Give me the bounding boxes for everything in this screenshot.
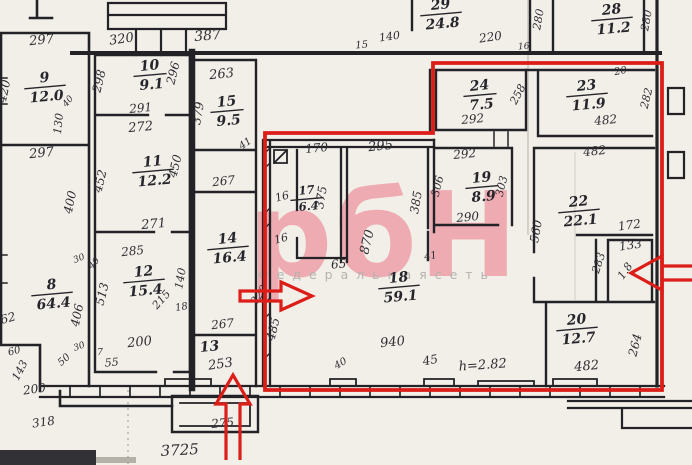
dim-label: 482 xyxy=(593,112,618,128)
room-area: 9.5 xyxy=(216,112,242,130)
dim-label: 297 xyxy=(28,145,56,163)
room-number: 8 xyxy=(46,277,58,294)
room-area: 7.5 xyxy=(469,96,495,114)
dim-label: 290 xyxy=(455,209,480,225)
dim-label: 275 xyxy=(210,415,235,431)
dim-label: 3725 xyxy=(160,440,199,460)
dim-label: 267 xyxy=(209,316,235,332)
dim-label: 200 xyxy=(126,334,153,352)
room-area: 12.2 xyxy=(137,172,173,191)
room-area: 16.4 xyxy=(212,249,247,268)
room-area: 22.1 xyxy=(562,212,598,231)
room-area: 24.8 xyxy=(424,15,461,34)
room-number: 23 xyxy=(575,77,597,95)
room-number: 24 xyxy=(468,77,490,95)
dim-label: 15 xyxy=(355,39,369,51)
dim-label: 45 xyxy=(421,352,439,369)
room-number: 15 xyxy=(216,93,237,111)
room-area: 12.7 xyxy=(561,330,597,349)
scan-smudge xyxy=(96,457,136,463)
dim-label: 271 xyxy=(140,216,167,233)
room-area: 11.9 xyxy=(571,96,607,115)
dim-label: 41 xyxy=(422,250,437,263)
room-number: 22 xyxy=(567,193,589,211)
room-area: 6.4 xyxy=(298,198,319,214)
dim-label: 297 xyxy=(28,32,56,50)
room-number: 10 xyxy=(139,57,160,75)
dim-label: 295 xyxy=(367,138,394,156)
room-area: 64.4 xyxy=(36,295,71,314)
room-area: 59.1 xyxy=(383,288,418,307)
scan-smudge xyxy=(0,450,96,465)
dim-label: 7 xyxy=(97,348,103,358)
room-number: 14 xyxy=(217,230,238,248)
dim-label: 16 xyxy=(518,42,531,53)
room-number: 20 xyxy=(565,311,587,329)
dim-label: 170 xyxy=(305,140,329,156)
watermark-tagline: Ф е д е р а л ь н а я с е т ь xyxy=(258,267,490,282)
dim-label: 482 xyxy=(581,143,606,159)
room-area: 12.0 xyxy=(29,88,65,107)
dim-label: 285 xyxy=(119,243,144,259)
room-number: 11 xyxy=(142,153,163,171)
room-number: 18 xyxy=(388,269,409,287)
room-number: 29 xyxy=(429,0,451,14)
floor-plan-scan: рбН Ф е д е р а л ь н а я с е т ь xyxy=(0,0,692,465)
dim-label: 65 xyxy=(330,256,346,271)
room-area: 15.4 xyxy=(128,282,163,301)
dim-label: 263 xyxy=(208,66,235,84)
room-number: 13 xyxy=(199,338,220,356)
dim-label: 482 xyxy=(573,358,600,375)
dim-label: 18 xyxy=(174,301,188,314)
room-number: 19 xyxy=(471,169,492,187)
dim-label: 130 xyxy=(51,113,66,135)
room-area: 9.1 xyxy=(139,76,165,94)
room-number: 28 xyxy=(600,1,622,19)
room-number: 17 xyxy=(298,182,315,198)
dim-label: 387 xyxy=(194,27,222,45)
room-area: 11.2 xyxy=(596,20,632,39)
dim-label: 940 xyxy=(380,334,406,352)
room-number: 12 xyxy=(133,263,154,281)
dim-label: 267 xyxy=(210,173,236,189)
dim-label: 291 xyxy=(128,100,153,116)
dim-label: 55 xyxy=(104,355,119,369)
room-area: 8.9 xyxy=(471,188,497,206)
room-number: 9 xyxy=(39,70,51,87)
dim-label: 292 xyxy=(452,146,477,162)
floor-plan-svg: рбН Ф е д е р а л ь н а я с е т ь xyxy=(0,0,692,465)
dim-label: 272 xyxy=(127,119,154,136)
